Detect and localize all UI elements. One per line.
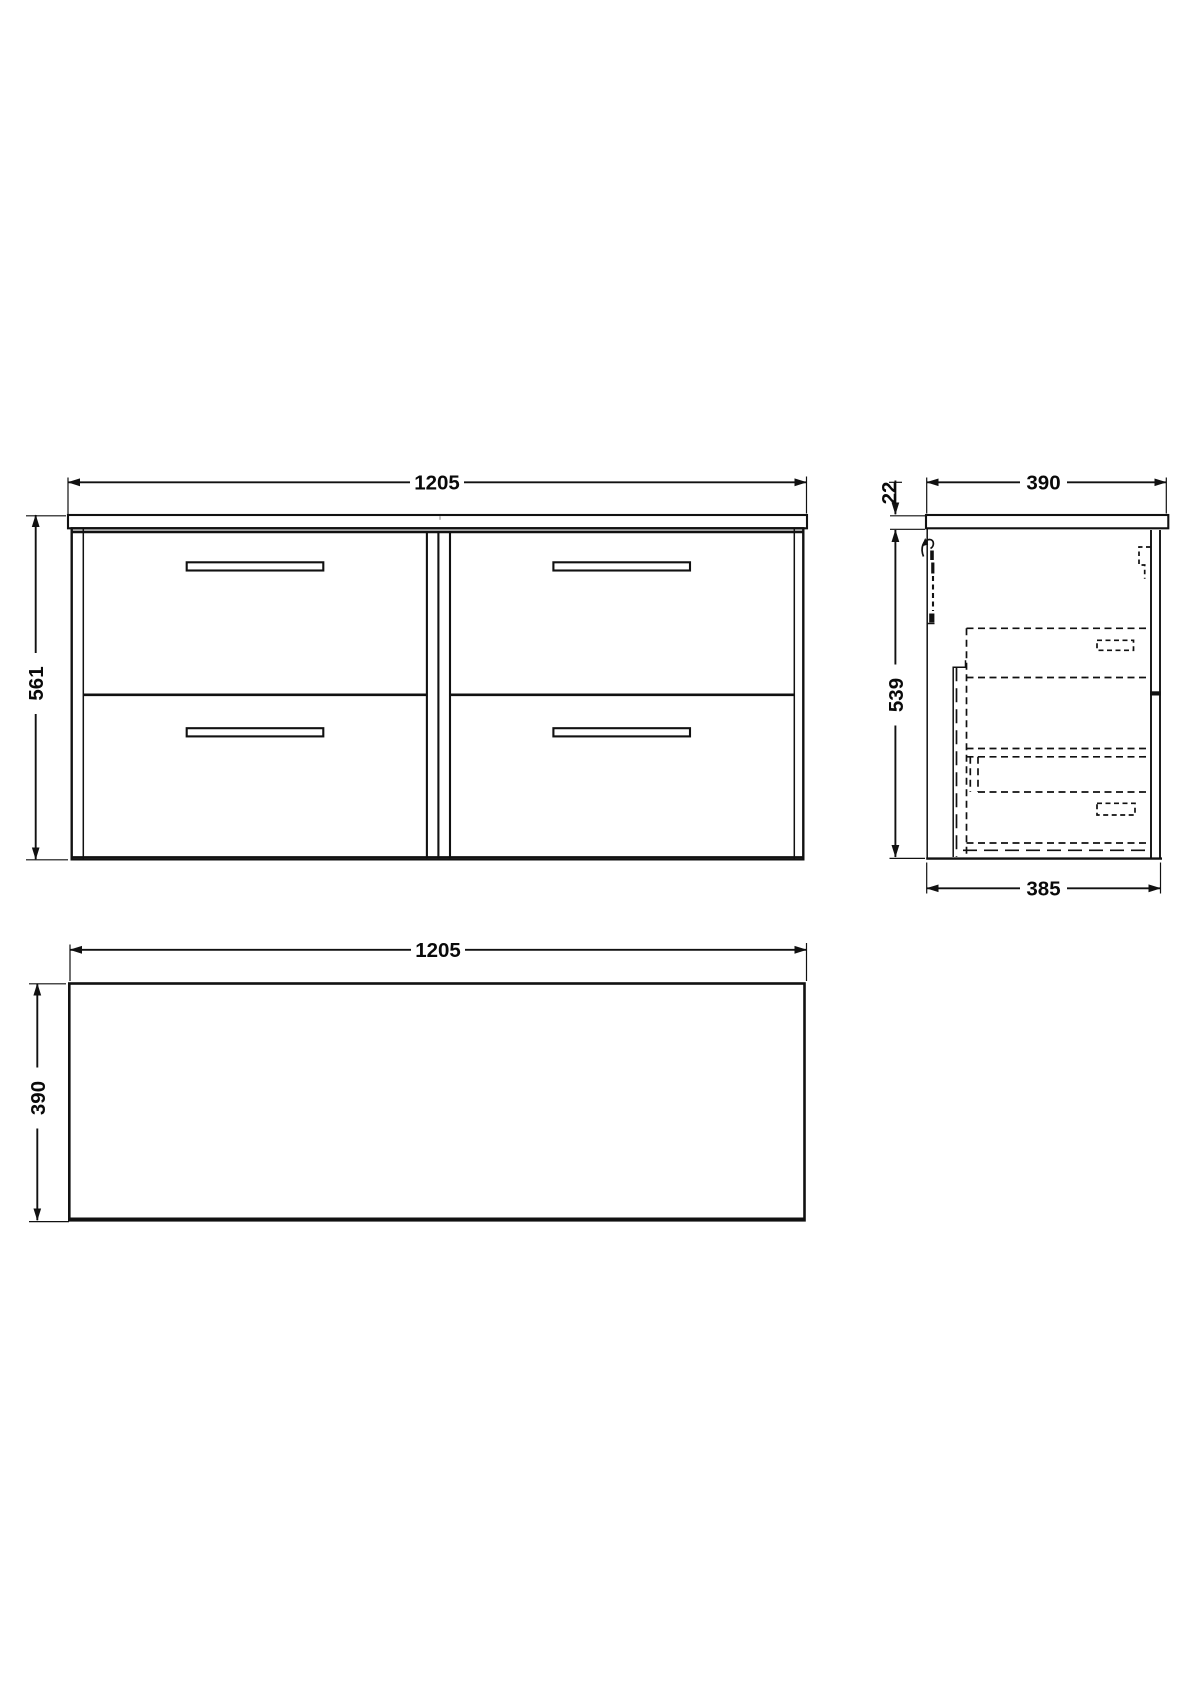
vanity-unit-technical-drawing: 1205 561	[0, 0, 1200, 1703]
drawer-handle-bottom-left	[187, 728, 324, 736]
plan-outline	[69, 984, 804, 1221]
plan-depth-label: 390	[27, 1081, 50, 1115]
side-depth-dimension: 385	[927, 863, 1161, 901]
front-panel-bracket-hidden	[1139, 547, 1151, 579]
side-width-label: 390	[1026, 472, 1060, 495]
drawer-handle-bottom-right	[553, 728, 690, 736]
side-drawer-gap-notch	[1150, 691, 1161, 695]
side-counter-thickness-label: 22	[878, 482, 901, 505]
side-depth-label: 385	[1026, 878, 1060, 901]
front-countertop	[68, 515, 807, 528]
plan-width-label: 1205	[415, 939, 461, 962]
bracket-foot	[929, 614, 934, 623]
front-view: 1205 561	[25, 471, 808, 860]
drawer-handle-top-right	[553, 562, 690, 570]
drawer-handle-top-left	[187, 562, 324, 570]
plan-depth-dimension: 390	[26, 984, 69, 1222]
runner-step	[953, 660, 965, 857]
side-countertop	[926, 515, 1168, 528]
plan-view: 1205 390	[26, 938, 807, 1222]
plan-width-dimension: 1205	[70, 938, 807, 981]
front-width-dimension: 1205	[68, 471, 807, 515]
bracket-pin	[930, 551, 934, 561]
side-width-dimension: 390	[927, 471, 1167, 514]
upper-handle-hidden	[1097, 640, 1134, 650]
front-height-label: 561	[25, 666, 48, 700]
front-height-dimension: 561	[25, 515, 69, 860]
bracket-pin	[931, 563, 934, 574]
wall-bracket-detail	[922, 538, 935, 624]
side-counter-thickness-dimension: 22	[878, 481, 925, 530]
side-height-dimension: 539	[884, 530, 925, 858]
side-height-label: 539	[885, 678, 908, 712]
side-view: 390 22 539 385	[878, 471, 1168, 901]
lower-handle-hidden	[1097, 803, 1135, 815]
front-width-label: 1205	[414, 472, 460, 495]
